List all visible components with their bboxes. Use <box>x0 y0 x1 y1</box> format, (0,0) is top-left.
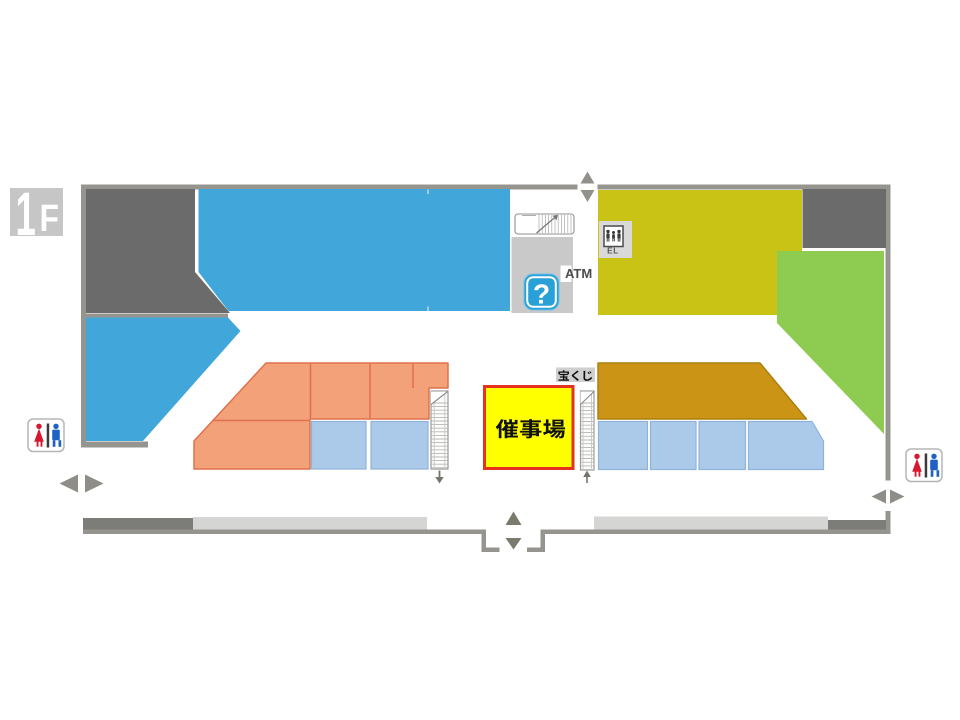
svg-text:?: ? <box>533 279 550 310</box>
svg-text:F: F <box>40 197 59 239</box>
svg-text:1: 1 <box>16 179 36 248</box>
svg-text:ATM: ATM <box>565 266 592 281</box>
svg-text:EL: EL <box>607 247 619 256</box>
